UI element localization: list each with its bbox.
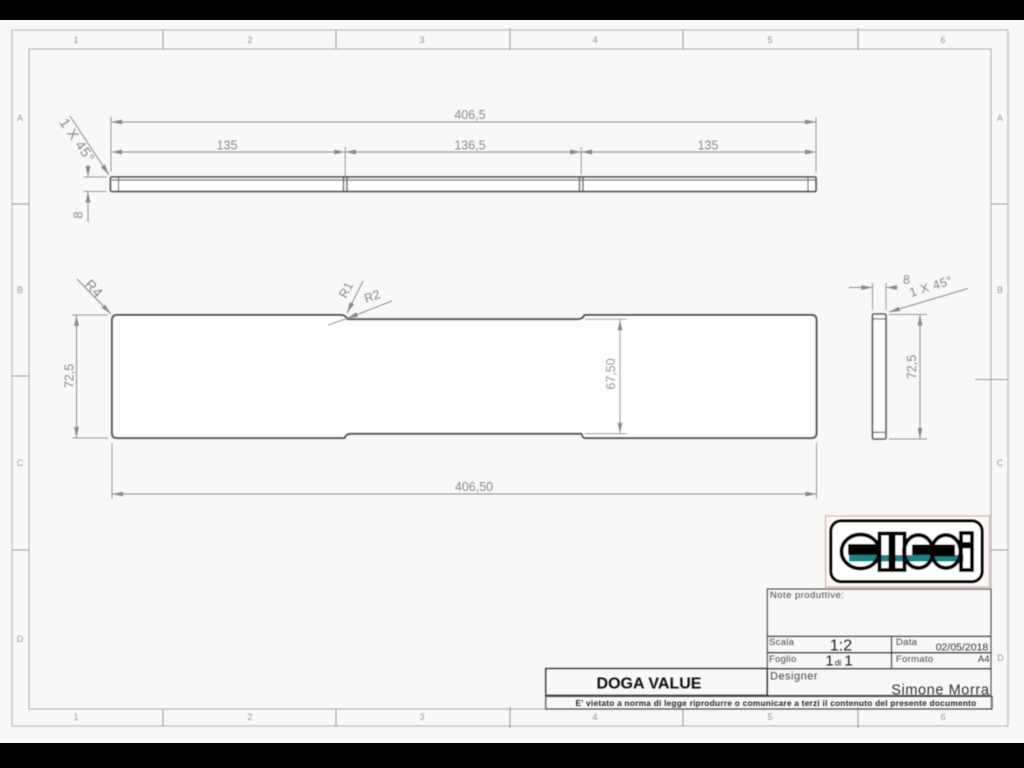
svg-text:02/05/2018: 02/05/2018 — [936, 642, 989, 654]
svg-text:6: 6 — [940, 35, 945, 45]
svg-text:Scala: Scala — [769, 637, 795, 648]
svg-text:D: D — [997, 653, 1004, 663]
svg-text:A4: A4 — [978, 654, 990, 665]
svg-text:135: 135 — [698, 139, 719, 153]
svg-text:Data: Data — [896, 637, 918, 648]
svg-text:1: 1 — [73, 35, 78, 45]
svg-text:5: 5 — [767, 712, 772, 722]
svg-text:Formato: Formato — [896, 654, 933, 665]
svg-text:72,5: 72,5 — [63, 364, 77, 388]
svg-text:DOGA VALUE: DOGA VALUE — [597, 676, 702, 693]
svg-text:67,50: 67,50 — [604, 358, 618, 389]
svg-text:B: B — [997, 285, 1003, 295]
svg-text:406,5: 406,5 — [454, 108, 485, 122]
svg-text:72,5: 72,5 — [905, 355, 919, 379]
svg-text:3: 3 — [419, 35, 424, 45]
svg-text:Simone Morra: Simone Morra — [891, 683, 990, 699]
svg-text:2: 2 — [247, 35, 252, 45]
svg-text:Note produttive:: Note produttive: — [770, 590, 844, 601]
svg-text:C: C — [997, 458, 1004, 468]
svg-text:4: 4 — [592, 35, 597, 45]
svg-text:8: 8 — [71, 211, 86, 218]
svg-text:406,50: 406,50 — [455, 480, 493, 494]
svg-text:2: 2 — [247, 712, 252, 722]
svg-text:5: 5 — [767, 35, 772, 45]
svg-text:A: A — [17, 113, 23, 123]
svg-text:E' vietato a norma di legge ri: E' vietato a norma di legge riprodurre o… — [576, 698, 977, 708]
svg-text:C: C — [17, 458, 24, 468]
svg-text:D: D — [17, 634, 24, 644]
svg-text:Foglio: Foglio — [769, 654, 797, 665]
svg-text:135: 135 — [217, 139, 238, 153]
svg-text:B: B — [17, 285, 23, 295]
svg-text:136,5: 136,5 — [454, 139, 485, 153]
svg-text:6: 6 — [940, 712, 945, 722]
svg-text:Designer: Designer — [770, 671, 818, 683]
svg-text:A: A — [997, 113, 1003, 123]
svg-text:1: 1 — [73, 712, 78, 722]
svg-text:8: 8 — [903, 273, 910, 287]
svg-text:3: 3 — [419, 712, 424, 722]
svg-text:4: 4 — [592, 712, 597, 722]
